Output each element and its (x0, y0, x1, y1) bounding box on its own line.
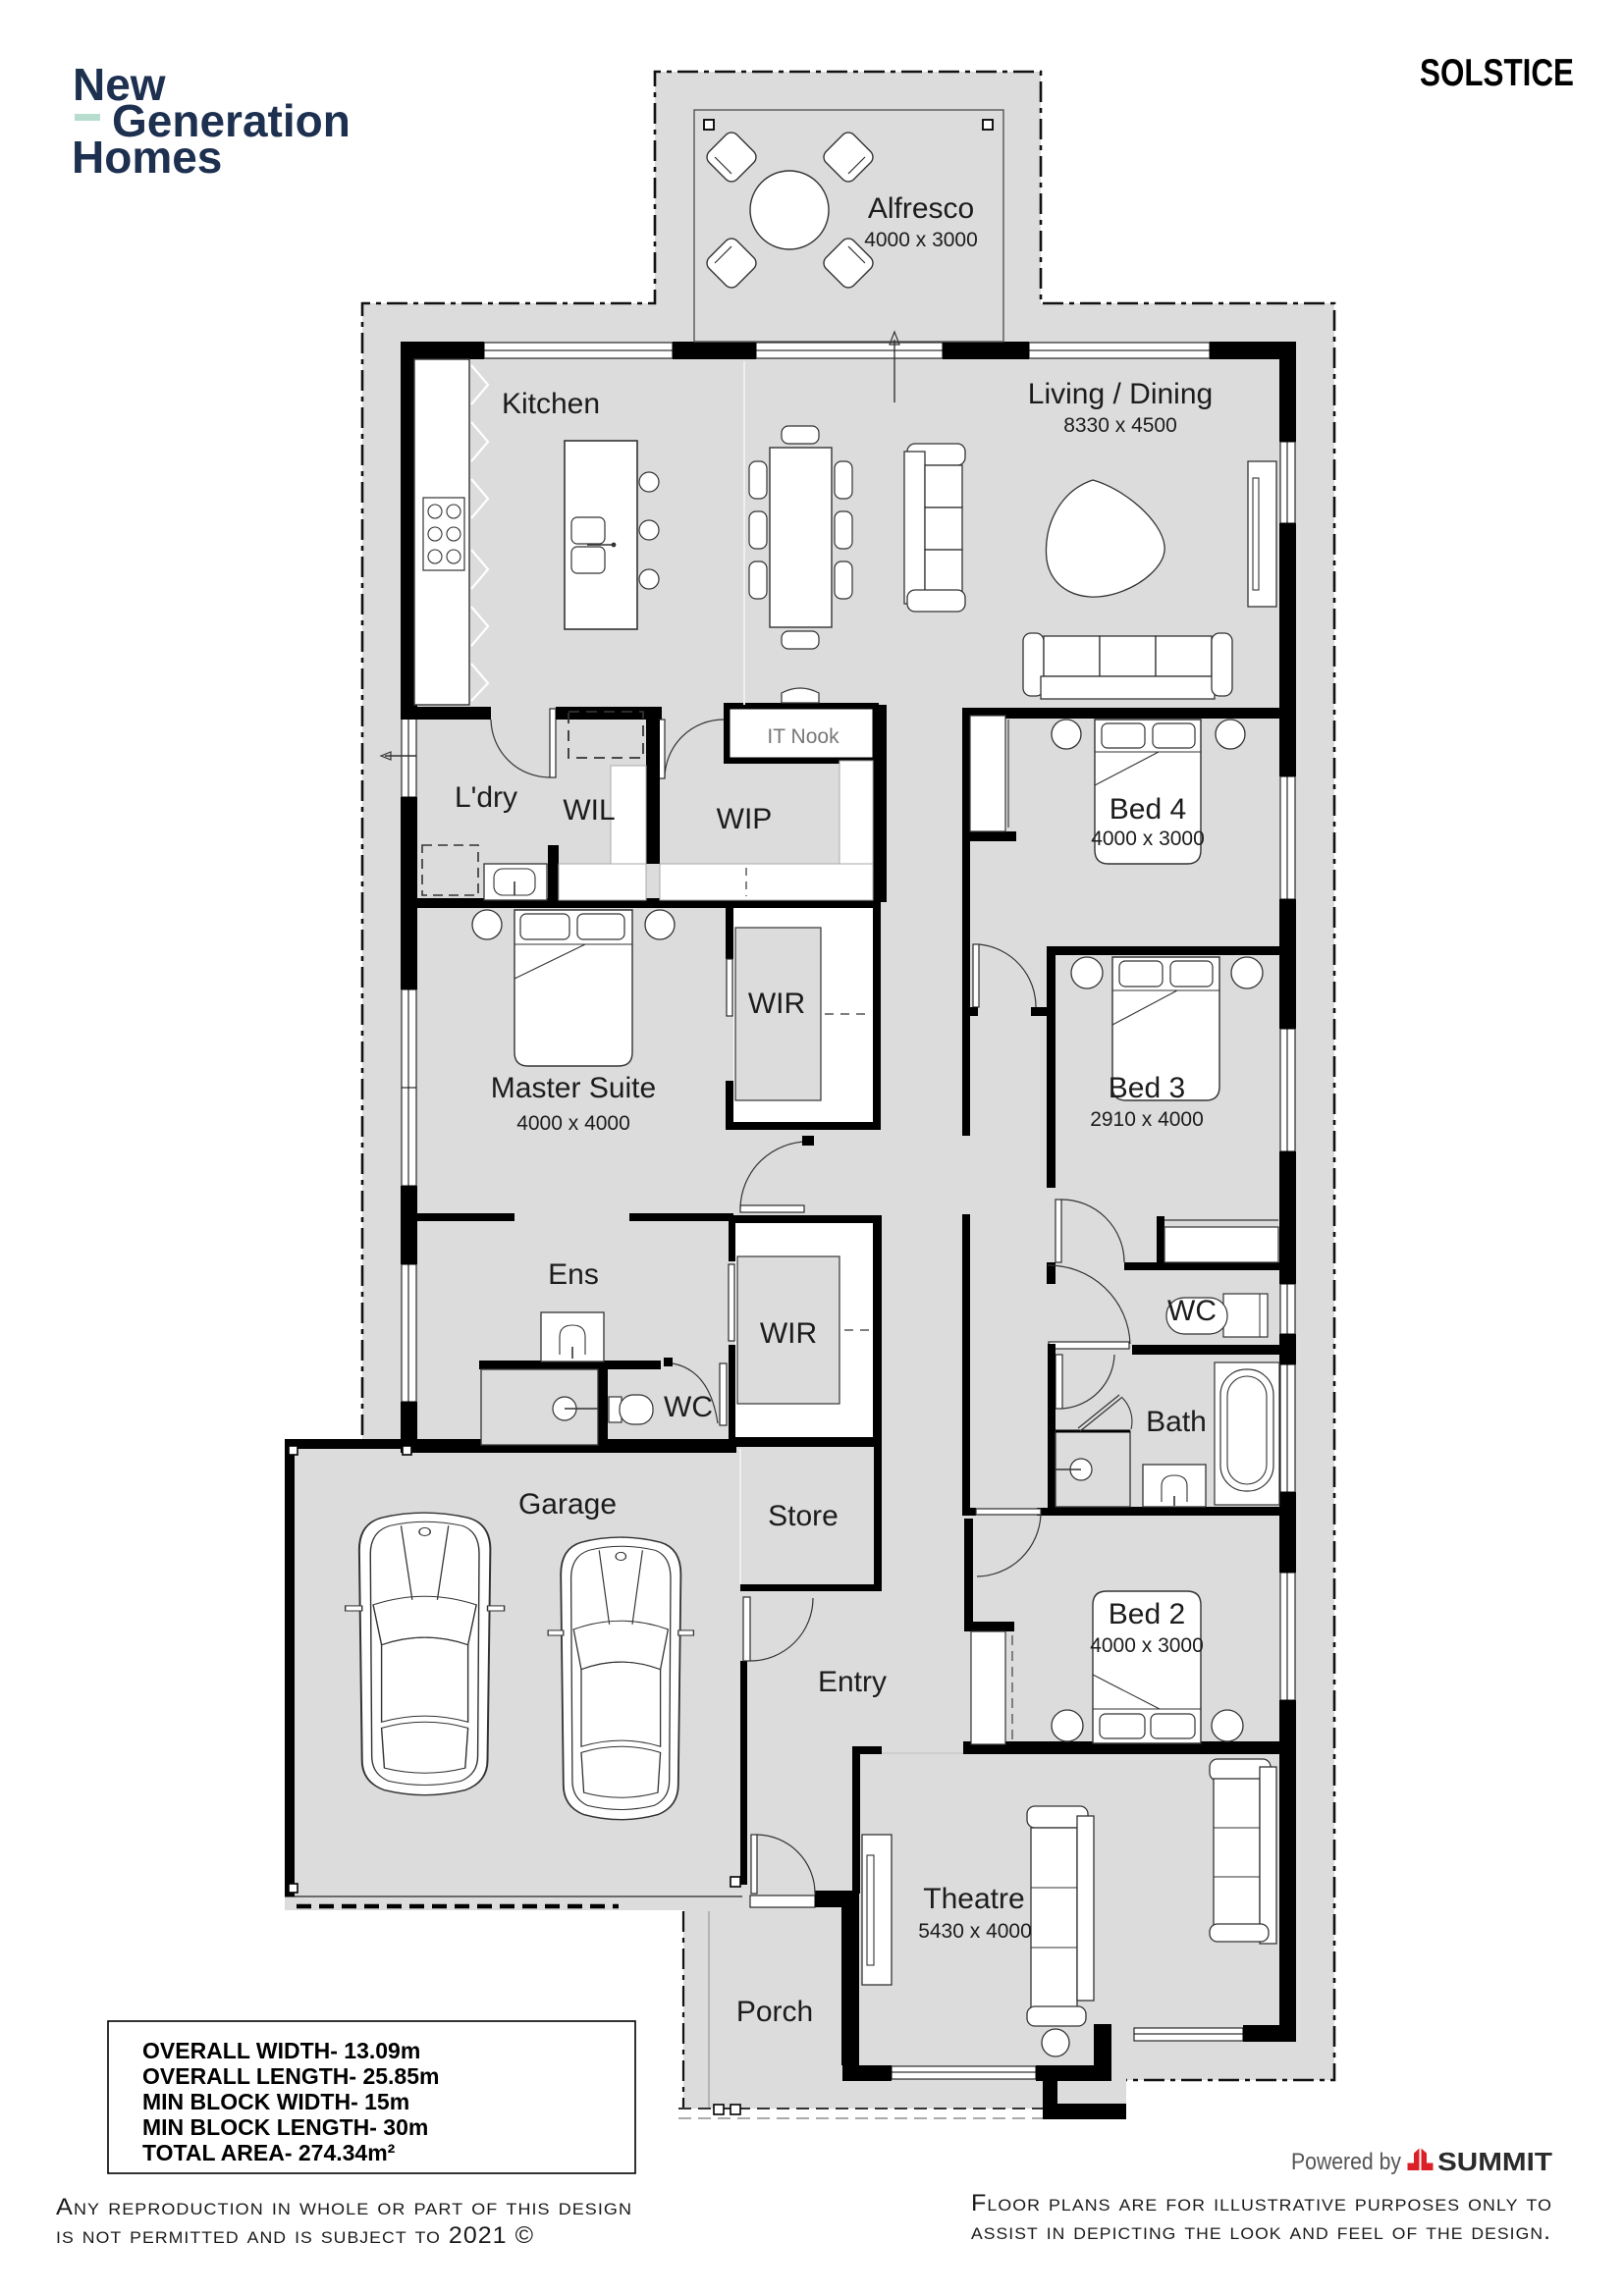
svg-text:4000 x 3000: 4000 x 3000 (864, 229, 978, 251)
svg-text:MIN BLOCK LENGTH- 30m: MIN BLOCK LENGTH- 30m (142, 2114, 428, 2140)
svg-text:L'dry: L'dry (455, 781, 517, 814)
svg-text:Alfresco: Alfresco (868, 192, 974, 225)
svg-text:Kitchen: Kitchen (502, 388, 600, 420)
svg-text:OVERALL LENGTH- 25.85m: OVERALL LENGTH- 25.85m (142, 2063, 439, 2089)
svg-text:WIR: WIR (748, 988, 805, 1020)
svg-text:Store: Store (768, 1500, 839, 1532)
svg-text:2910 x 4000: 2910 x 4000 (1090, 1108, 1204, 1131)
svg-text:4000 x 3000: 4000 x 3000 (1090, 1634, 1204, 1657)
svg-text:IT Nook: IT Nook (767, 725, 839, 748)
svg-text:4000 x 4000: 4000 x 4000 (516, 1112, 630, 1135)
svg-text:MIN BLOCK WIDTH- 15m: MIN BLOCK WIDTH- 15m (142, 2089, 409, 2114)
svg-text:assist in depicting the look a: assist in depicting the look and feel of… (971, 2218, 1551, 2245)
svg-text:Garage: Garage (518, 1488, 617, 1521)
svg-text:Powered by: Powered by (1291, 2149, 1401, 2175)
svg-text:WIL: WIL (563, 794, 615, 827)
svg-text:Any reproduction in whole or p: Any reproduction in whole or part of thi… (56, 2194, 632, 2220)
svg-text:Bath: Bath (1146, 1406, 1207, 1438)
svg-text:OVERALL WIDTH- 13.09m: OVERALL WIDTH- 13.09m (142, 2038, 420, 2063)
svg-text:Floor plans are for illustrati: Floor plans are for illustrative purpose… (971, 2190, 1552, 2216)
svg-text:WIP: WIP (717, 803, 773, 835)
svg-text:Bed 3: Bed 3 (1109, 1072, 1185, 1104)
svg-text:WIR: WIR (760, 1317, 817, 1350)
svg-text:Homes: Homes (72, 132, 222, 183)
svg-text:Theatre: Theatre (923, 1883, 1024, 1915)
svg-text:Master Suite: Master Suite (491, 1072, 656, 1104)
svg-text:SUMMIT: SUMMIT (1437, 2147, 1552, 2176)
svg-text:5430 x 4000: 5430 x 4000 (918, 1920, 1032, 1943)
svg-text:4000 x 3000: 4000 x 3000 (1091, 828, 1205, 850)
svg-text:WC: WC (1167, 1295, 1217, 1327)
svg-text:Bed 2: Bed 2 (1109, 1598, 1185, 1630)
svg-text:TOTAL AREA- 274.34m²: TOTAL AREA- 274.34m² (142, 2140, 396, 2165)
svg-text:is not permitted and is subjec: is not permitted and is subject to 2021 … (56, 2222, 534, 2249)
svg-text:Porch: Porch (736, 1996, 813, 2028)
svg-text:Ens: Ens (548, 1258, 599, 1291)
svg-text:Bed 4: Bed 4 (1110, 793, 1186, 826)
svg-text:WC: WC (664, 1391, 713, 1423)
svg-text:8330 x 4500: 8330 x 4500 (1063, 414, 1177, 437)
svg-text:SOLSTICE: SOLSTICE (1420, 52, 1574, 94)
svg-text:Entry: Entry (818, 1666, 887, 1698)
svg-text:Living / Dining: Living / Dining (1028, 378, 1213, 410)
